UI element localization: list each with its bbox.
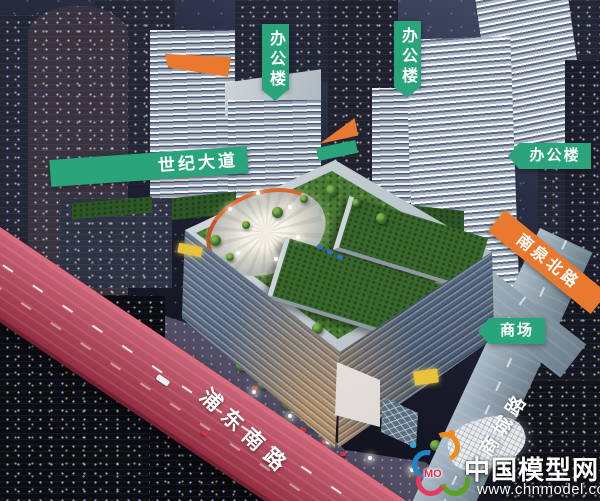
watermark-logo-mo-text: MO (424, 468, 442, 480)
roof-tree (326, 185, 337, 196)
label-office-building-3-text: 办公楼 (529, 147, 580, 164)
label-century-avenue-text: 世纪大道 (157, 151, 238, 176)
plaza-light (228, 207, 232, 211)
roof-tree (242, 221, 250, 229)
mall-logo-sign-right (413, 368, 439, 385)
scene: 浦东南路 商城路 世纪大道 办公楼 办公楼 办公楼 商场 南泉北路 MO 中国模… (0, 0, 600, 501)
label-office-building-2: 办公楼 (394, 21, 421, 87)
label-shopping-mall-text: 商场 (500, 322, 534, 339)
plaza-light (288, 205, 292, 209)
roof-tree (226, 253, 234, 261)
watermark-logo-dot-green (458, 488, 464, 494)
plaza-light (236, 251, 240, 255)
roof-tree (376, 213, 387, 224)
roof-tree (300, 195, 308, 203)
watermark-logo-dot-blue (410, 442, 416, 448)
plaza-light (274, 257, 278, 261)
watermark-logo: MO (412, 430, 472, 498)
label-office-building-1-text: 办公楼 (262, 24, 289, 90)
street-light (368, 456, 372, 460)
watermark-logo-dot-orange (448, 430, 455, 437)
label-office-building-2-text: 办公楼 (394, 21, 421, 87)
highway-car (201, 430, 208, 437)
watermark-site-url: www.chnmodel.com (477, 481, 600, 498)
roof-tree (352, 199, 360, 207)
plaza-light (296, 235, 300, 239)
highway-bus (155, 374, 170, 387)
plaza-light (256, 191, 260, 195)
label-office-building-3: 办公楼 (519, 143, 591, 169)
label-office-building-1: 办公楼 (262, 24, 289, 90)
label-shopping-mall: 商场 (489, 318, 545, 344)
roof-tree (272, 207, 283, 218)
roof-tree (210, 235, 221, 246)
